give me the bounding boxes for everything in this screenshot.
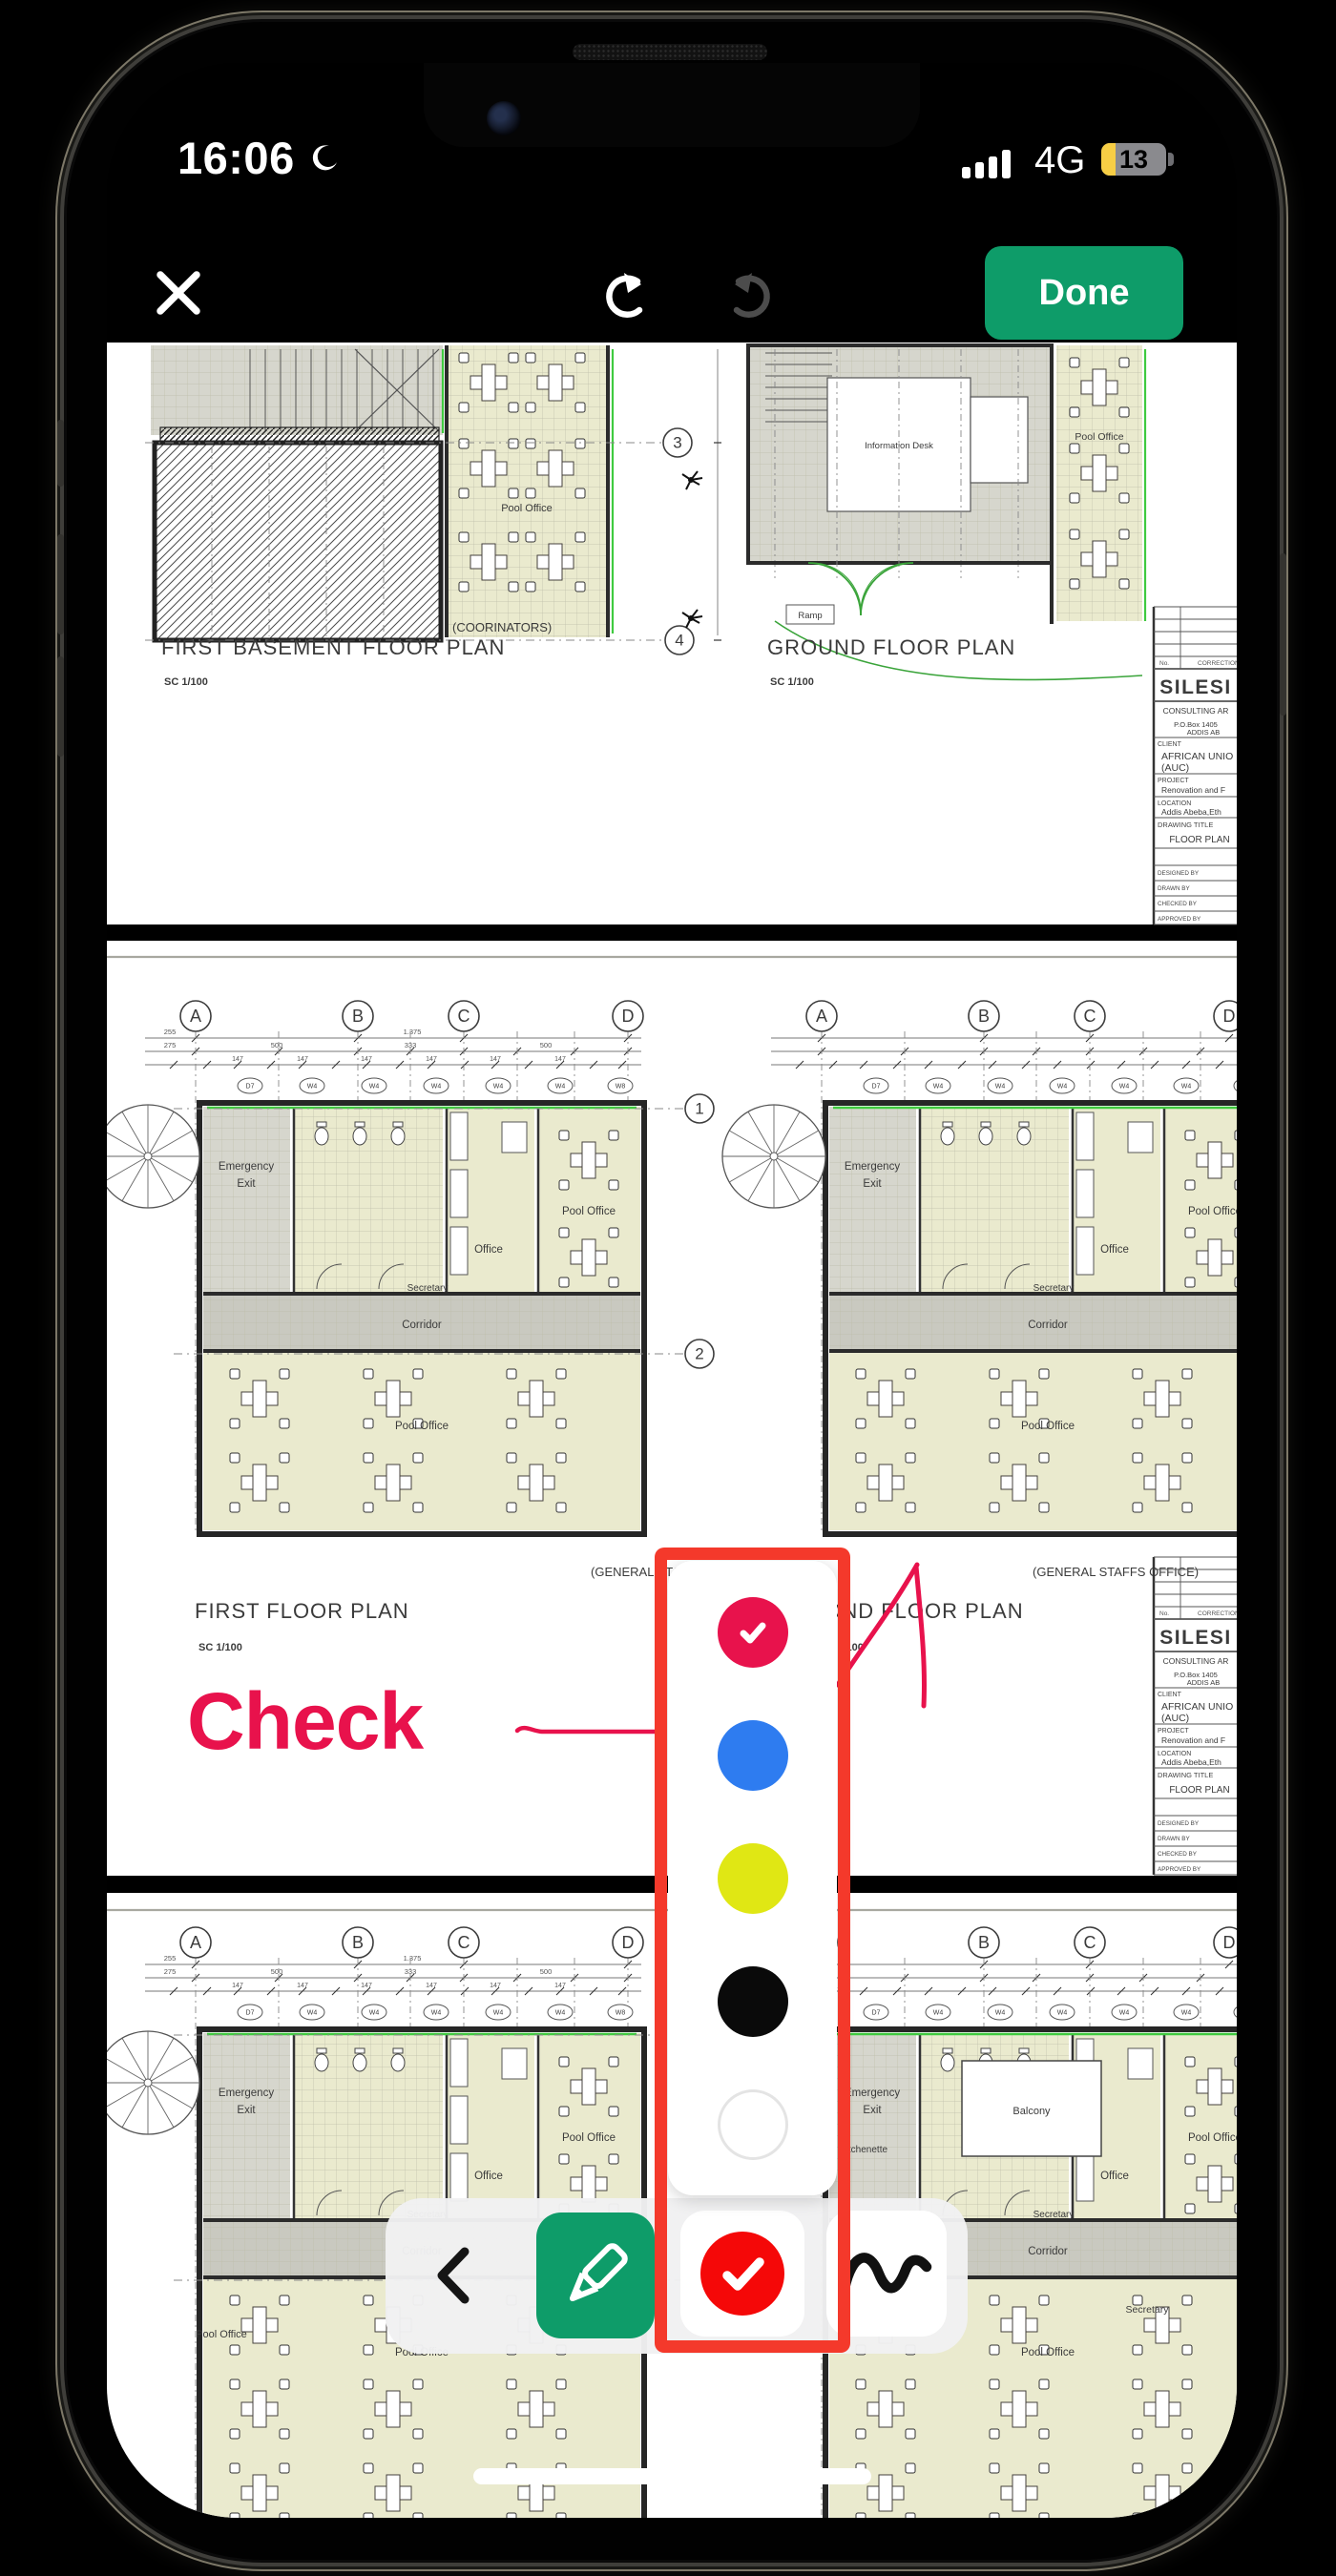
battery-nub [1168,153,1174,166]
done-button[interactable]: Done [985,246,1183,340]
mute-switch [57,420,64,487]
pdf-page-1 [107,343,1237,924]
swatch-pink[interactable] [718,1597,788,1668]
iphone-frame: 2551.375275500333500147147147147147147AB… [60,15,1284,2566]
scribble-tool-button[interactable] [826,2211,947,2337]
swatch-black[interactable] [718,1966,788,2037]
swatch-yellow[interactable] [718,1843,788,1914]
active-color-button[interactable] [680,2211,804,2337]
color-picker-panel [668,1561,837,2195]
pen-tool-button[interactable] [536,2212,655,2338]
swatch-white[interactable] [718,2089,788,2160]
selected-color-check-icon [695,2226,790,2321]
pencil-icon [543,2223,648,2328]
scribble-icon [834,2240,939,2307]
screen: 2551.375275500333500147147147147147147AB… [107,63,1237,2518]
battery-indicator: 13 [1101,143,1166,176]
undo-button[interactable] [589,265,658,326]
redo-button[interactable] [719,265,787,326]
markup-toolbar [386,2198,968,2354]
status-time: 16:06 [177,132,295,184]
back-button[interactable] [412,2233,498,2318]
volume-down-button [57,656,64,757]
home-indicator[interactable] [473,2468,871,2484]
close-button[interactable] [145,260,212,326]
signal-strength-icon [962,145,1023,181]
network-type-label: 4G [1034,139,1085,182]
power-button [1280,553,1286,716]
earpiece-speaker-grille [573,44,767,60]
swatch-blue[interactable] [718,1720,788,1791]
volume-up-button [57,534,64,634]
check-icon [732,1611,774,1653]
status-bar: 16:06 4G 13 [107,63,1237,206]
do-not-disturb-moon-icon [309,143,340,174]
stage: 2551.375275500333500147147147147147147AB… [0,0,1336,2576]
ink-annotation-text[interactable]: Check [187,1675,423,1768]
chevron-left-icon [425,2244,486,2307]
battery-percent: 13 [1101,143,1166,176]
